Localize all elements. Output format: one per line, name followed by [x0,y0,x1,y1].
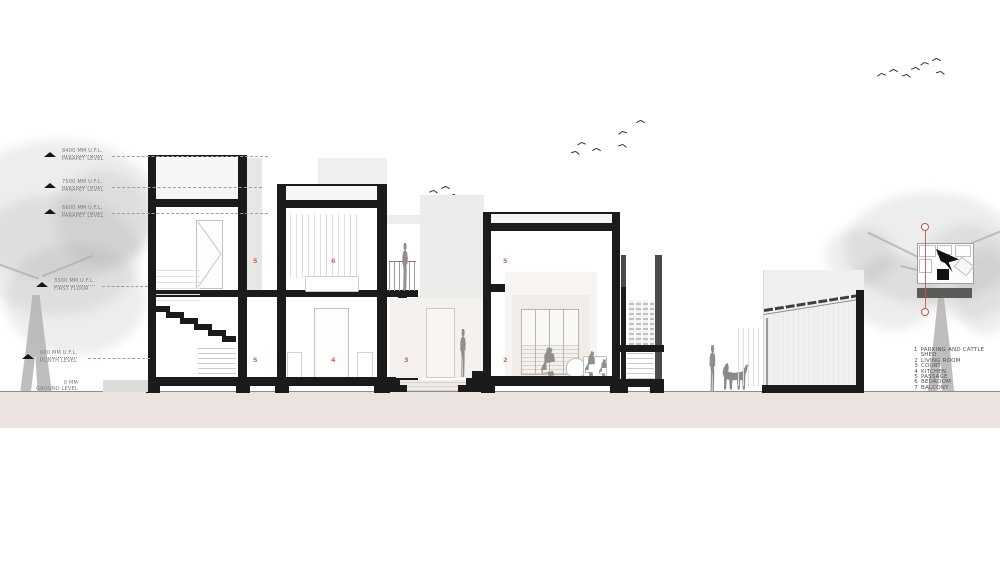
court-tower-backdrop [420,195,484,298]
wall-cut [148,155,156,378]
level-elevation: 0 MM [64,380,78,386]
benchmark-icon [22,354,34,359]
shed-column [856,290,864,390]
benchmark-icon [44,209,56,214]
footing [481,386,495,393]
level-leader-line [112,213,268,214]
bird-icon [902,72,912,78]
section-marker-top [921,223,929,231]
bird-icon [932,57,941,62]
legend-item: 7 BALCONY [910,386,998,391]
ground-fill [0,392,1000,428]
shed-wall-texture [768,305,856,383]
bird-icon [636,119,645,124]
tower-column-cut [621,287,626,386]
shed-base-slab [762,385,864,393]
plinth-slab [618,379,664,387]
parapet-fill [156,157,238,199]
level-elevation: 6600 MM U.F.L. [62,205,103,213]
level-elevation: 600 MM U.F.L. [40,350,77,358]
key-plan-block [937,269,949,280]
court-step [387,377,396,385]
wall-cut [483,212,491,386]
shed-post [766,318,768,386]
bird-icon [577,141,586,147]
room-marker-passage-upper: 5 [253,257,258,265]
bird-icon [592,147,601,152]
footing [650,387,664,393]
level-elevation: 3300 MM U.F.L. [54,278,95,286]
bird-icon [618,142,628,148]
benchmark-icon [44,183,56,188]
stair-step [222,336,236,342]
court-step [472,371,483,378]
plinth-slab [483,376,620,386]
benchmark-icon [44,152,56,157]
shed-side-wall [738,328,763,386]
room-marker-bedroom: 6 [331,257,336,265]
person-in-yard [706,345,719,392]
benchmark-icon [36,282,48,287]
room-marker-passage-b: 5 [503,257,508,265]
roof-slab [148,199,247,207]
key-plan-room [955,245,971,257]
bird-icon [911,66,920,72]
passage-backdrop [245,158,262,292]
level-leader-line [102,286,148,287]
footing [236,386,250,393]
court-step [458,385,483,392]
legend-label: BALCONY [921,386,949,391]
room-marker-living: 2 [503,356,508,364]
level-name: PARAPET LEVEL [62,213,104,219]
section-cut-line [925,229,926,311]
roof-slab [483,223,620,231]
wall-cut [238,155,247,378]
level-name: FIRST FLOOR [54,286,89,292]
level-leader-line [88,358,150,359]
bird-icon [429,189,438,195]
bird-icon [920,60,930,66]
roof-slab [277,200,387,208]
stair-flight-outline [156,268,200,301]
wall-cut [377,184,387,378]
parapet-top-line [483,212,620,214]
court-door [426,308,455,378]
bird-icon [618,129,628,135]
level-leader-line [112,156,268,157]
jali-screen [627,300,654,345]
entry-step [103,380,148,392]
footing [616,387,628,393]
level-elevation: 8400 MM U.F.L. [62,148,103,156]
wall-cut [277,184,286,378]
level-name: PARAPET LEVEL [62,187,104,193]
section-marker-bottom [921,308,929,316]
court-step [466,378,483,385]
level-elevation: 7500 MM U.F.L. [62,179,103,187]
wardrobe-louvers [290,214,362,278]
legend-num: 7 [910,386,918,391]
wall-cut [612,212,620,386]
landing-slab [618,345,664,352]
footing [275,386,289,393]
bird-icon [889,68,898,73]
kitchen-door [314,308,349,378]
parapet-fill [286,186,377,200]
door-diagonals [197,221,222,288]
plinth-slab [148,377,418,386]
footing [146,386,160,393]
tower-stair-treads [627,352,654,379]
bird-icon [441,185,450,190]
court-step [387,385,407,392]
section-drawing: 8400 MM U.F.L. PARAPET LEVEL 7500 MM U.F… [0,0,1000,562]
bed [305,276,359,292]
key-plan-room [919,245,936,257]
legend: 1 PARKING AND CATTLE SHED 2 LIVING ROOM … [910,348,998,391]
room-marker-kitchen: 4 [331,356,336,364]
bird-icon [936,69,946,75]
balcony-railing [389,261,416,291]
level-name: PARAPET LEVEL [62,156,104,162]
level-name: GROUND LEVEL [36,386,78,392]
room-marker-court: 3 [404,356,409,364]
level-name: PLINTH LEVEL [40,358,77,364]
tall-door [196,220,223,289]
parapet-fill [491,214,612,223]
kitchen-counter [287,352,302,378]
room-marker-balcony: 7 [404,256,409,264]
kitchen-counter [357,352,373,378]
room-marker-passage-lower: 5 [253,356,258,364]
parapet-top-line [277,184,387,186]
bird-icon [877,72,886,78]
level-leader-line [112,187,262,188]
bird-icon [571,149,581,156]
tower-column [655,255,662,386]
